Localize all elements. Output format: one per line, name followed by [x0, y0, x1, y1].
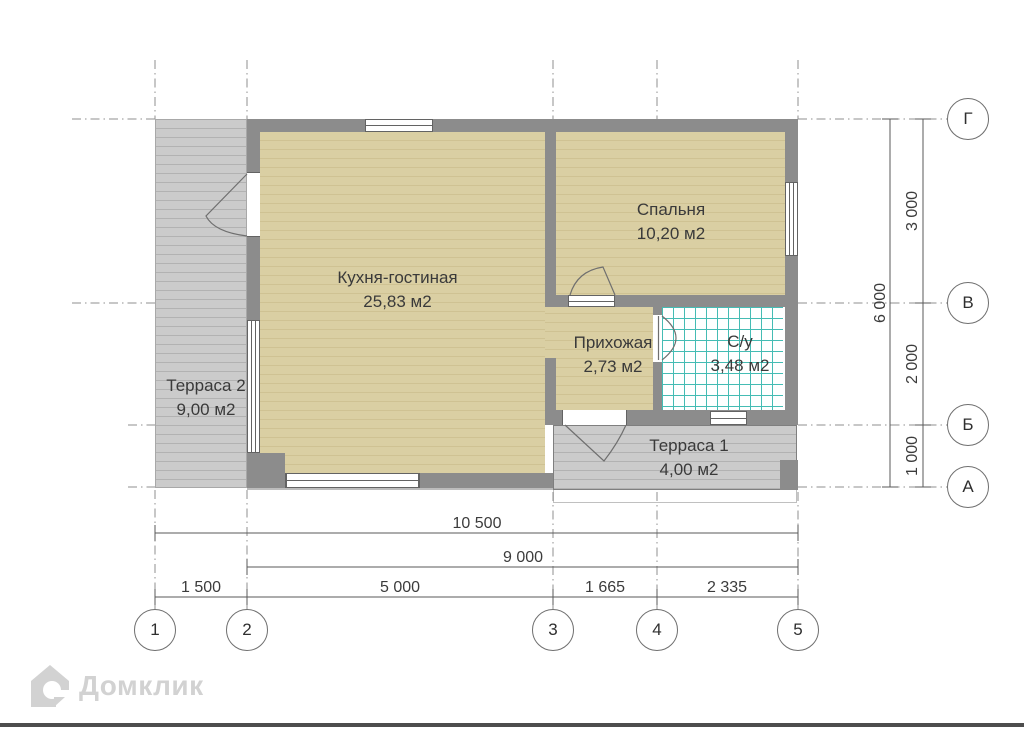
room-name: Терраса 2: [146, 374, 266, 398]
axis-circle-row-g: Г: [947, 98, 989, 140]
house-icon: [30, 664, 70, 708]
logo-text: Домклик: [79, 670, 204, 702]
bottom-border-bar: [0, 723, 1024, 727]
axis-label: 2: [242, 620, 251, 640]
dim-inner-width: 9 000: [503, 549, 543, 567]
door-swing-terrace2: [206, 174, 247, 236]
room-name: Спальня: [580, 198, 762, 222]
dim-seg-2: 5 000: [380, 579, 420, 597]
axis-label: 1: [150, 620, 159, 640]
room-name: Кухня-гостиная: [280, 266, 515, 290]
dim-vseg-1: 3 000: [904, 191, 922, 231]
dim-vseg-3: 1 000: [904, 436, 922, 476]
door-swing-bedroom: [570, 267, 615, 295]
axis-circle-row-b: Б: [947, 404, 989, 446]
axis-label: Б: [962, 415, 973, 435]
dim-total-height: 6 000: [872, 283, 890, 323]
room-area: 2,73 м2: [551, 355, 675, 379]
axis-circle-col-4: 4: [636, 609, 678, 651]
dim-seg-4: 2 335: [707, 579, 747, 597]
room-area: 25,83 м2: [280, 290, 515, 314]
dim-total-width: 10 500: [453, 515, 502, 533]
room-name: Терраса 1: [609, 434, 769, 458]
axis-circle-col-1: 1: [134, 609, 176, 651]
axis-label: А: [962, 477, 973, 497]
dim-seg-3: 1 665: [585, 579, 625, 597]
dimension-lines: [155, 119, 931, 605]
axis-label: 4: [652, 620, 661, 640]
room-name: Прихожая: [551, 331, 675, 355]
axis-label: 5: [793, 620, 802, 640]
room-area: 10,20 м2: [580, 222, 762, 246]
room-name: С/у: [680, 330, 800, 354]
axis-label: Г: [963, 109, 972, 129]
axis-grid-lines: [72, 60, 947, 609]
axis-circle-col-3: 3: [532, 609, 574, 651]
room-label-kitchen-living: Кухня-гостиная 25,83 м2: [280, 266, 515, 314]
room-label-bathroom: С/у 3,48 м2: [680, 330, 800, 378]
room-label-terrace1: Терраса 1 4,00 м2: [609, 434, 769, 482]
room-area: 3,48 м2: [680, 354, 800, 378]
axis-label: В: [962, 293, 973, 313]
domclick-logo: Домклик: [30, 664, 204, 708]
axis-circle-row-v: В: [947, 282, 989, 324]
dim-vseg-2: 2 000: [904, 344, 922, 384]
room-area: 4,00 м2: [609, 458, 769, 482]
axis-circle-col-2: 2: [226, 609, 268, 651]
room-area: 9,00 м2: [146, 398, 266, 422]
axis-circle-col-5: 5: [777, 609, 819, 651]
room-label-hallway: Прихожая 2,73 м2: [551, 331, 675, 379]
floor-plan-page: Кухня-гостиная 25,83 м2 Спальня 10,20 м2…: [0, 0, 1024, 729]
dim-seg-1: 1 500: [181, 579, 221, 597]
axis-circle-row-a: А: [947, 466, 989, 508]
axis-label: 3: [548, 620, 557, 640]
room-label-terrace2: Терраса 2 9,00 м2: [146, 374, 266, 422]
room-label-bedroom: Спальня 10,20 м2: [580, 198, 762, 246]
